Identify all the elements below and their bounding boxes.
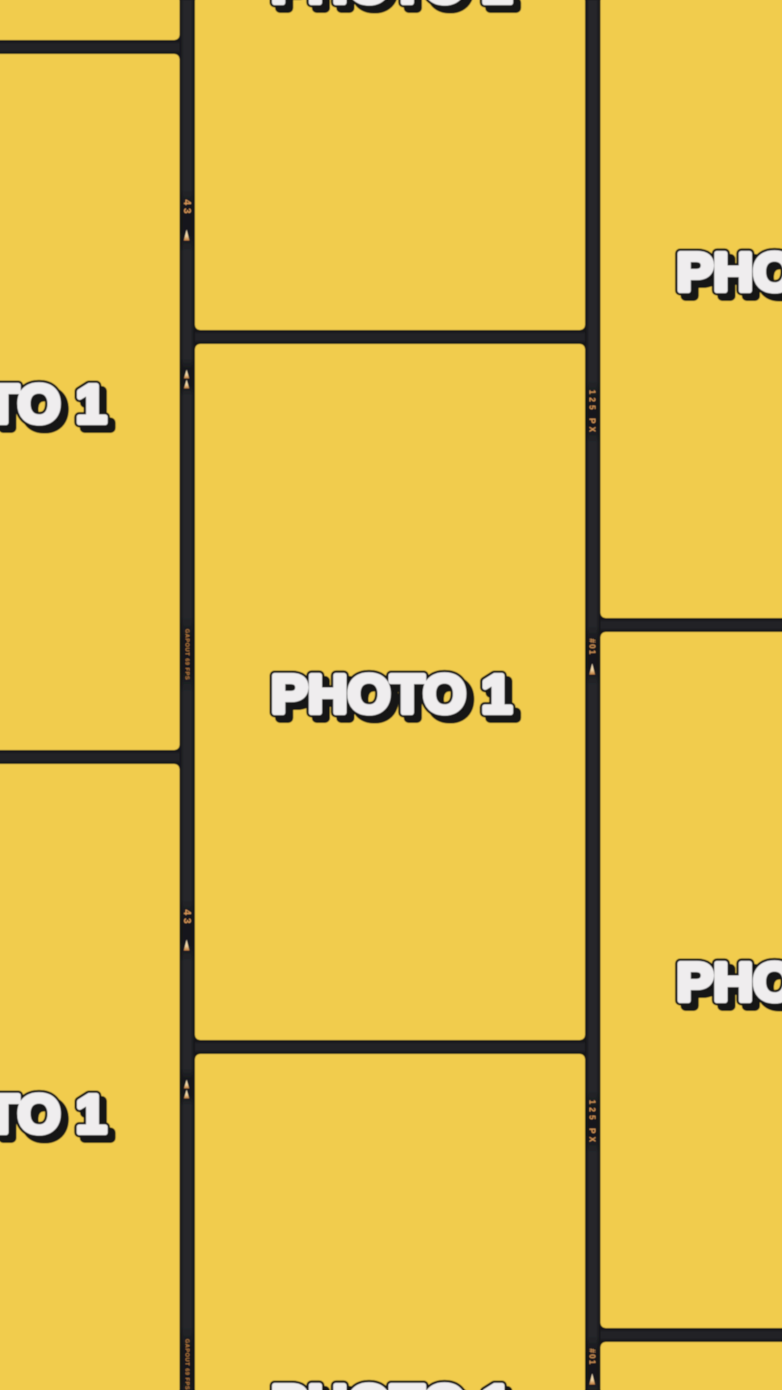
svg-text:43: 43 <box>181 199 192 216</box>
svg-text:#01: #01 <box>588 639 597 656</box>
svg-text:GAPOUT 69 FPS: GAPOUT 69 FPS <box>184 629 190 680</box>
svg-text:125 PX: 125 PX <box>588 390 597 435</box>
svg-text:PHOTO 1: PHOTO 1 <box>0 1085 107 1145</box>
svg-text:PHOTO 1: PHOTO 1 <box>0 375 107 435</box>
svg-text:PHOTO 1: PHOTO 1 <box>677 953 782 1013</box>
svg-text:GAPOUT 69 FPS: GAPOUT 69 FPS <box>184 1339 190 1390</box>
svg-text:PHOTO 1: PHOTO 1 <box>677 243 782 303</box>
svg-text:PHOTO 1: PHOTO 1 <box>271 665 512 725</box>
svg-text:PHOTO 1: PHOTO 1 <box>271 1375 512 1390</box>
svg-text:43: 43 <box>181 909 192 926</box>
svg-text:PHOTO 1: PHOTO 1 <box>271 0 512 15</box>
svg-text:125 PX: 125 PX <box>588 1100 597 1145</box>
svg-text:#01: #01 <box>588 1349 597 1366</box>
